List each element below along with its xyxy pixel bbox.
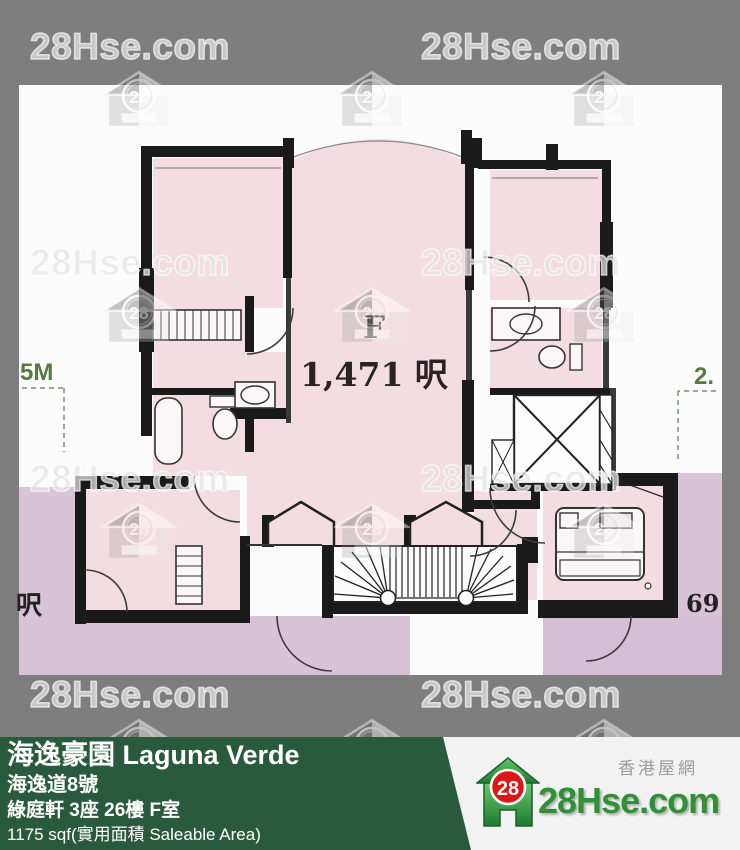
estate-address: 海逸道8號 (7, 772, 300, 798)
floorplan-image: F 1,471 呎 5M 2. 呎 69 (0, 0, 740, 737)
28hse-house-icon: 28 (476, 756, 540, 828)
logo-site-text: 28Hse.com (538, 780, 719, 822)
dim-right-bottom-label: 69 (686, 589, 719, 618)
estate-area: 1175 sqf(實用面積 Saleable Area) (7, 823, 300, 846)
28hse-logo: 28 28Hse.com 香港屋網 (470, 740, 740, 850)
logo-tagline-text: 香港屋網 (618, 754, 698, 779)
dim-right-label: 2. (694, 363, 714, 390)
estate-unit: 綠庭軒 3座 26樓 F室 (7, 798, 300, 823)
page: F 1,471 呎 5M 2. 呎 69 28 28Hse.com 28Hse.… (0, 0, 740, 850)
staircase (333, 546, 517, 606)
estate-title: 海逸豪園 Laguna Verde (7, 739, 300, 772)
dim-left-bottom-label: 呎 (16, 590, 43, 620)
listing-info: 海逸豪園 Laguna Verde 海逸道8號 綠庭軒 3座 26樓 F室 11… (7, 739, 300, 846)
dim-left-label: 5M (20, 359, 53, 386)
logo-badge-text: 28 (497, 778, 519, 800)
unit-label: F (363, 310, 385, 346)
area-label: 1,471 呎 (300, 355, 449, 394)
